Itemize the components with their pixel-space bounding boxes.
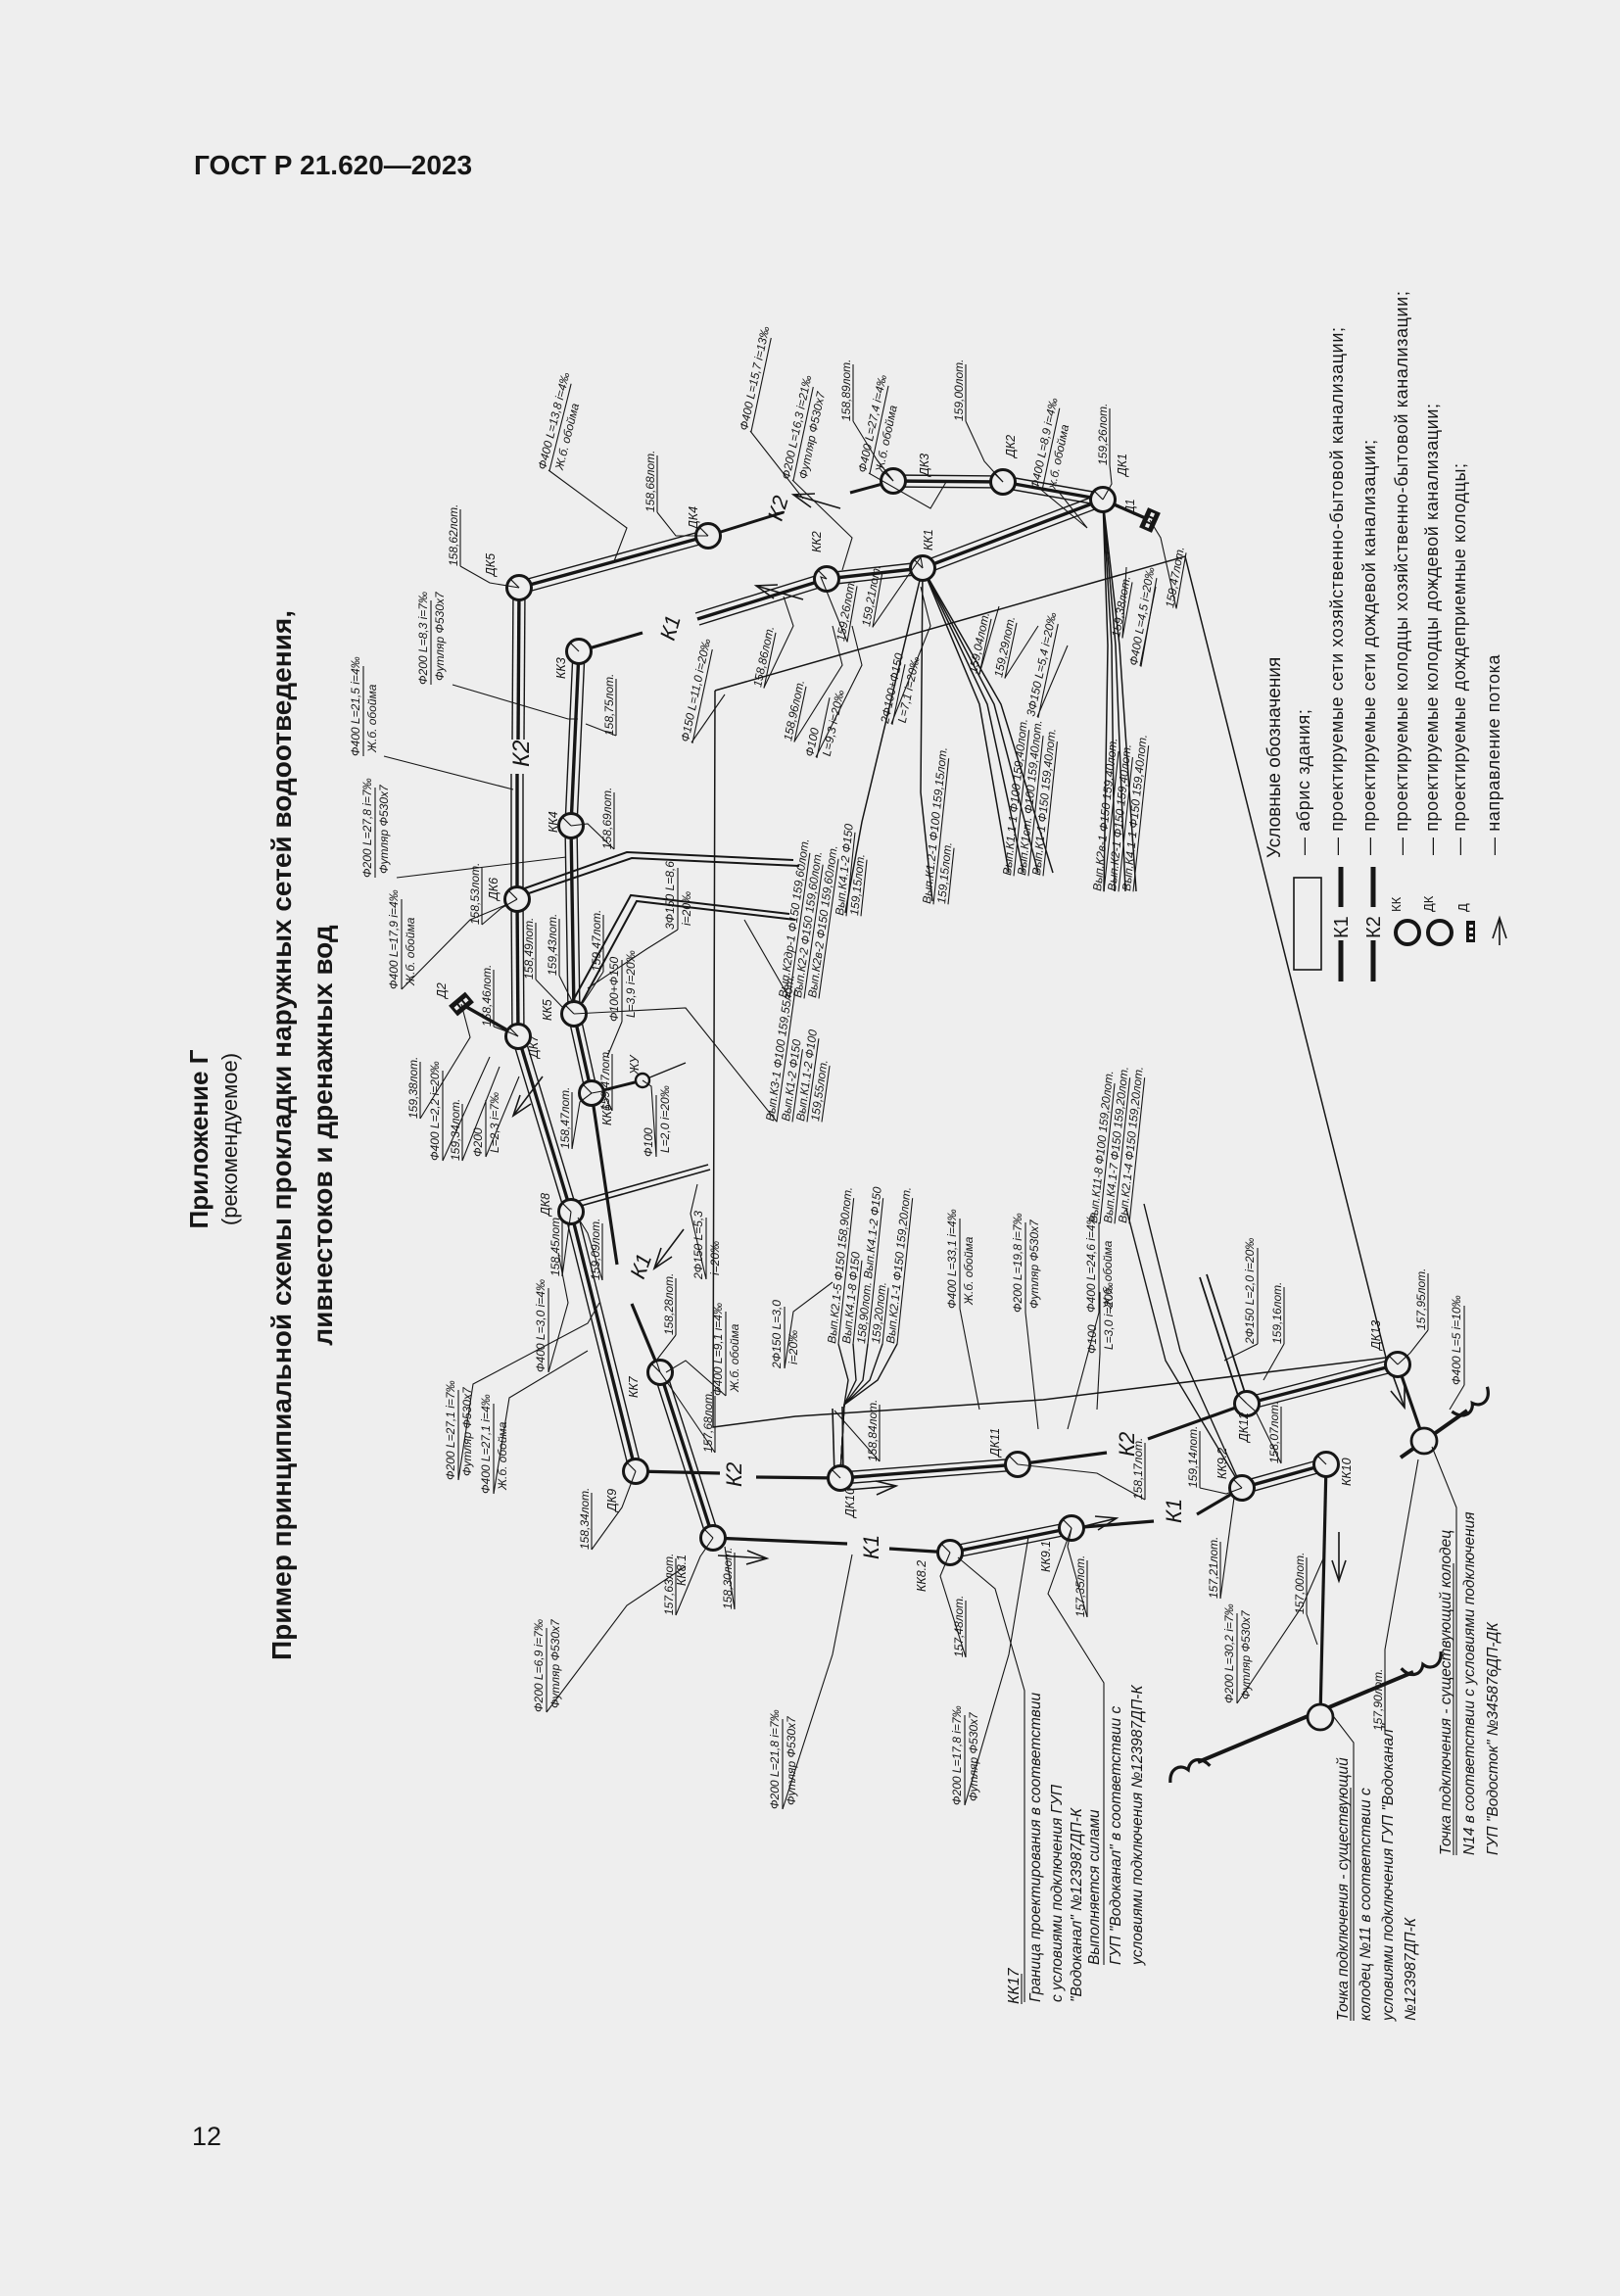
svg-text:КК9.2: КК9.2 bbox=[1215, 1448, 1229, 1479]
svg-text:Д: Д bbox=[1455, 903, 1470, 912]
svg-text:ДК12: ДК12 bbox=[1237, 1412, 1251, 1444]
svg-text:КК8.1: КК8.1 bbox=[675, 1555, 689, 1586]
svg-text:Ф400 L=33,1 i=4‰: Ф400 L=33,1 i=4‰ bbox=[945, 1209, 959, 1309]
svg-text:КК: КК bbox=[1389, 896, 1404, 912]
svg-text:ДК1: ДК1 bbox=[1116, 454, 1129, 478]
svg-text:Ф100: Ф100 bbox=[1085, 1324, 1099, 1354]
svg-text:159,47лот.: 159,47лот. bbox=[598, 1049, 612, 1111]
svg-text:К2: К2 bbox=[508, 741, 535, 768]
svg-text:Футляр Ф530х7: Футляр Ф530х7 bbox=[377, 784, 391, 874]
svg-text:159,47лот.: 159,47лот. bbox=[590, 910, 603, 972]
svg-text:Ф400 L=21,5 i=4‰: Ф400 L=21,5 i=4‰ bbox=[349, 656, 362, 756]
svg-text:ГУП "Водоканал" в соответствии: ГУП "Водоканал" в соответствии с bbox=[1108, 1705, 1124, 1965]
svg-text:Ф200 L=19,8 i=7‰: Ф200 L=19,8 i=7‰ bbox=[1011, 1213, 1024, 1313]
svg-text:ДК8: ДК8 bbox=[539, 1193, 552, 1218]
svg-text:ДК4: ДК4 bbox=[687, 506, 700, 531]
svg-text:ДК2: ДК2 bbox=[1004, 435, 1018, 459]
svg-text:Ф200 L=27,1 i=7‰: Ф200 L=27,1 i=7‰ bbox=[444, 1380, 457, 1480]
svg-text:L=2,0 i=20‰: L=2,0 i=20‰ bbox=[658, 1085, 672, 1153]
svg-text:К1: К1 bbox=[1162, 1499, 1186, 1523]
svg-text:159,09лот.: 159,09лот. bbox=[589, 1219, 602, 1280]
svg-text:Футляр Ф530х7: Футляр Ф530х7 bbox=[1239, 1609, 1253, 1699]
svg-text:ДК13: ДК13 bbox=[1369, 1320, 1383, 1352]
svg-text:Ф400 L=17,9 i=4‰: Ф400 L=17,9 i=4‰ bbox=[387, 889, 401, 989]
svg-text:№123987ДП-К: №123987ДП-К bbox=[1403, 1917, 1419, 2021]
svg-text:КК7: КК7 bbox=[627, 1375, 641, 1398]
svg-text:N14 в соответствии с условиями: N14 в соответствии с условиями подключен… bbox=[1461, 1511, 1478, 1855]
svg-text:i=20‰: i=20‰ bbox=[786, 1330, 800, 1364]
svg-text:— проектируемые сети хозяйстве: — проектируемые сети хозяйственно-бытово… bbox=[1327, 326, 1347, 855]
svg-text:Точка подключения - существующ: Точка подключения - существующий колодец bbox=[1438, 1530, 1454, 1855]
svg-text:ДК5: ДК5 bbox=[484, 553, 498, 578]
svg-text:условиями подключения №123987Д: условиями подключения №123987ДП-К bbox=[1129, 1685, 1146, 1966]
svg-text:Ф400 L=9,1 i=4‰: Ф400 L=9,1 i=4‰ bbox=[711, 1303, 725, 1396]
svg-text:Ф100: Ф100 bbox=[642, 1127, 655, 1157]
svg-text:Футляр Ф530х7: Футляр Ф530х7 bbox=[785, 1715, 798, 1805]
svg-text:158,07лот.: 158,07лот. bbox=[1267, 1402, 1281, 1463]
svg-text:158,69лот.: 158,69лот. bbox=[600, 788, 614, 849]
svg-text:— проектируемые колодцы дождев: — проектируемые колодцы дождевой канализ… bbox=[1422, 403, 1442, 855]
svg-text:L=3,9 i=20‰: L=3,9 i=20‰ bbox=[624, 950, 638, 1018]
svg-text:Футляр Ф530х7: Футляр Ф530х7 bbox=[433, 591, 447, 681]
svg-text:ГОСТ Р 21.620—2023: ГОСТ Р 21.620—2023 bbox=[194, 150, 472, 180]
svg-text:КК5: КК5 bbox=[541, 999, 554, 1021]
svg-text:Ф400 L=24,6 i=4‰: Ф400 L=24,6 i=4‰ bbox=[1084, 1213, 1098, 1313]
svg-text:ДК11: ДК11 bbox=[988, 1428, 1002, 1459]
svg-text:157,63лот.: 157,63лот. bbox=[662, 1554, 676, 1615]
svg-text:К1: К1 bbox=[1331, 916, 1353, 938]
svg-text:Футляр Ф530х7: Футляр Ф530х7 bbox=[967, 1711, 980, 1801]
svg-text:ЖУ: ЖУ bbox=[628, 1054, 642, 1076]
svg-text:Д1: Д1 bbox=[1123, 499, 1137, 516]
svg-text:158,84лот.: 158,84лот. bbox=[866, 1400, 880, 1461]
svg-text:— абрис здания;: — абрис здания; bbox=[1294, 708, 1313, 855]
svg-text:158,68лот.: 158,68лот. bbox=[643, 451, 657, 512]
svg-text:Ф400 L=2,2 i=20‰: Ф400 L=2,2 i=20‰ bbox=[428, 1061, 442, 1161]
svg-text:— проектируемые колодцы хозяйс: — проектируемые колодцы хозяйственно-быт… bbox=[1392, 291, 1411, 855]
svg-text:КК10: КК10 bbox=[1340, 1458, 1354, 1486]
svg-text:КК1: КК1 bbox=[922, 529, 935, 550]
svg-text:ливнестоков и дренажных вод: ливнестоков и дренажных вод bbox=[308, 925, 338, 1346]
svg-text:Ф200 L=27,8 i=7‰: Ф200 L=27,8 i=7‰ bbox=[360, 778, 374, 878]
svg-text:L=2,3 i=7‰: L=2,3 i=7‰ bbox=[488, 1092, 501, 1153]
svg-text:159,16лот.: 159,16лот. bbox=[1270, 1282, 1284, 1344]
svg-text:Д2: Д2 bbox=[435, 982, 449, 1000]
svg-text:Ж.б. обойма: Ж.б. обойма bbox=[496, 1421, 509, 1491]
svg-text:(рекомендуемое): (рекомендуемое) bbox=[217, 1053, 242, 1225]
svg-text:158,62лот.: 158,62лот. bbox=[447, 504, 460, 566]
svg-text:Ф400 L=27,1 i=4‰: Ф400 L=27,1 i=4‰ bbox=[479, 1394, 493, 1494]
svg-text:Ж.б. обойма: Ж.б. обойма bbox=[962, 1236, 976, 1306]
svg-text:Ф200 L=17,8 i=7‰: Ф200 L=17,8 i=7‰ bbox=[950, 1705, 964, 1805]
svg-text:158,17лот.: 158,17лот. bbox=[1131, 1438, 1145, 1500]
svg-text:ДК10: ДК10 bbox=[843, 1488, 857, 1519]
svg-text:158,34лот.: 158,34лот. bbox=[578, 1488, 592, 1550]
svg-text:Ж.б. обойма: Ж.б. обойма bbox=[728, 1323, 741, 1393]
svg-text:158,49лот.: 158,49лот. bbox=[522, 918, 536, 980]
svg-text:Выполняется силами: Выполняется силами bbox=[1086, 1809, 1103, 1965]
svg-text:— проектируемые сети дождевой: — проектируемые сети дождевой канализаци… bbox=[1359, 439, 1379, 855]
svg-text:Ф200 L=21,8 i=7‰: Ф200 L=21,8 i=7‰ bbox=[768, 1709, 782, 1809]
svg-text:К2: К2 bbox=[1363, 916, 1385, 938]
svg-text:158,46лот.: 158,46лот. bbox=[480, 965, 494, 1027]
svg-text:Футляр Ф530х7: Футляр Ф530х7 bbox=[1027, 1219, 1041, 1309]
svg-text:159,43лот.: 159,43лот. bbox=[546, 914, 559, 976]
svg-text:КК2: КК2 bbox=[810, 531, 824, 552]
svg-text:Ф200 L=8,3 i=7‰: Ф200 L=8,3 i=7‰ bbox=[416, 592, 430, 685]
svg-text:КК9.1: КК9.1 bbox=[1039, 1541, 1053, 1572]
svg-text:158,89лот.: 158,89лот. bbox=[839, 359, 853, 421]
svg-text:КК17: КК17 bbox=[1006, 1967, 1023, 2004]
svg-text:условиями подключения ГУП "Вод: условиями подключения ГУП "Водоканал" bbox=[1380, 1722, 1397, 2022]
svg-text:157,90лот.: 157,90лот. bbox=[1371, 1669, 1385, 1731]
svg-text:Ф200 L=6,9 i=7‰: Ф200 L=6,9 i=7‰ bbox=[532, 1619, 546, 1712]
svg-text:"Водоканал" №123987ДП-К: "Водоканал" №123987ДП-К bbox=[1069, 1807, 1085, 2002]
svg-text:Ф200 L=30,2 i=7‰: Ф200 L=30,2 i=7‰ bbox=[1222, 1603, 1236, 1703]
svg-text:колодец №11 в соответствии с: колодец №11 в соответствии с bbox=[1358, 1788, 1374, 2021]
svg-text:Условные обозначения: Условные обозначения bbox=[1264, 657, 1285, 858]
svg-text:КК4: КК4 bbox=[547, 811, 560, 833]
svg-text:ДК3: ДК3 bbox=[918, 454, 931, 478]
svg-text:КК3: КК3 bbox=[554, 657, 568, 679]
svg-text:ДК6: ДК6 bbox=[487, 878, 500, 902]
svg-text:158,75лот.: 158,75лот. bbox=[602, 674, 616, 736]
svg-text:159,34лот.: 159,34лот. bbox=[449, 1099, 462, 1161]
svg-text:— проектируемые дождеприемные: — проектируемые дождеприемные колодцы; bbox=[1450, 462, 1469, 855]
svg-text:i=20‰: i=20‰ bbox=[708, 1241, 722, 1275]
svg-text:158,28лот.: 158,28лот. bbox=[662, 1273, 676, 1335]
svg-text:Приложение Г: Приложение Г bbox=[184, 1049, 214, 1228]
svg-text:— направление потока: — направление потока bbox=[1484, 654, 1503, 855]
svg-text:159,00лот.: 159,00лот. bbox=[952, 359, 966, 421]
svg-text:К2: К2 bbox=[722, 1462, 746, 1487]
svg-text:Ф400 L=5 i=10‰: Ф400 L=5 i=10‰ bbox=[1450, 1295, 1463, 1385]
svg-text:Ф100+Ф150: Ф100+Ф150 bbox=[607, 957, 621, 1022]
svg-text:159,14лот.: 159,14лот. bbox=[1186, 1426, 1200, 1488]
svg-text:Ф200: Ф200 bbox=[471, 1127, 485, 1157]
svg-text:К1: К1 bbox=[859, 1535, 883, 1559]
svg-text:158,47лот.: 158,47лот. bbox=[558, 1087, 572, 1149]
svg-text:КК8.2: КК8.2 bbox=[915, 1560, 929, 1592]
svg-text:157,95лот.: 157,95лот. bbox=[1414, 1268, 1428, 1330]
svg-text:ДК9: ДК9 bbox=[605, 1489, 619, 1513]
svg-text:158,45лот.: 158,45лот. bbox=[548, 1215, 562, 1276]
svg-text:Футляр Ф530х7: Футляр Ф530х7 bbox=[460, 1386, 474, 1476]
svg-text:L=3,0 i=20‰: L=3,0 i=20‰ bbox=[1102, 1282, 1116, 1350]
svg-text:Ф400 L=3,0 i=4‰: Ф400 L=3,0 i=4‰ bbox=[534, 1279, 548, 1372]
svg-text:2Ф150 L=3,0: 2Ф150 L=3,0 bbox=[770, 1300, 784, 1369]
svg-text:157,48лот.: 157,48лот. bbox=[952, 1596, 966, 1657]
svg-text:157,21лот.: 157,21лот. bbox=[1207, 1537, 1220, 1599]
svg-text:159,38лот.: 159,38лот. bbox=[406, 1057, 420, 1119]
svg-text:Пример принципиальной схемы пр: Пример принципиальной схемы прокладки на… bbox=[266, 610, 297, 1660]
svg-text:3Ф150 L=8,6: 3Ф150 L=8,6 bbox=[663, 861, 677, 930]
svg-text:с условиями подключения ГУП: с условиями подключения ГУП bbox=[1049, 1784, 1066, 2002]
svg-text:Ж.б. обойма: Ж.б. обойма bbox=[365, 684, 379, 753]
svg-text:ДК7: ДК7 bbox=[527, 1034, 541, 1060]
svg-text:158,30лот.: 158,30лот. bbox=[721, 1548, 735, 1609]
svg-text:159,26лот.: 159,26лот. bbox=[1096, 404, 1110, 465]
svg-text:ГУП "Водосток" №345876ДП-ДК: ГУП "Водосток" №345876ДП-ДК bbox=[1485, 1622, 1501, 1855]
svg-text:Граница проектирования в соотв: Граница проектирования в соответствии bbox=[1027, 1693, 1044, 2002]
svg-text:2Ф150 L=2,0 i=20‰: 2Ф150 L=2,0 i=20‰ bbox=[1243, 1238, 1257, 1345]
svg-text:Точка подключения - существующ: Точка подключения - существующий bbox=[1335, 1757, 1352, 2021]
svg-text:12: 12 bbox=[192, 2122, 221, 2151]
svg-text:i=20‰: i=20‰ bbox=[680, 891, 693, 926]
svg-text:157,00лот.: 157,00лот. bbox=[1293, 1553, 1307, 1614]
svg-text:ДК: ДК bbox=[1421, 895, 1436, 912]
